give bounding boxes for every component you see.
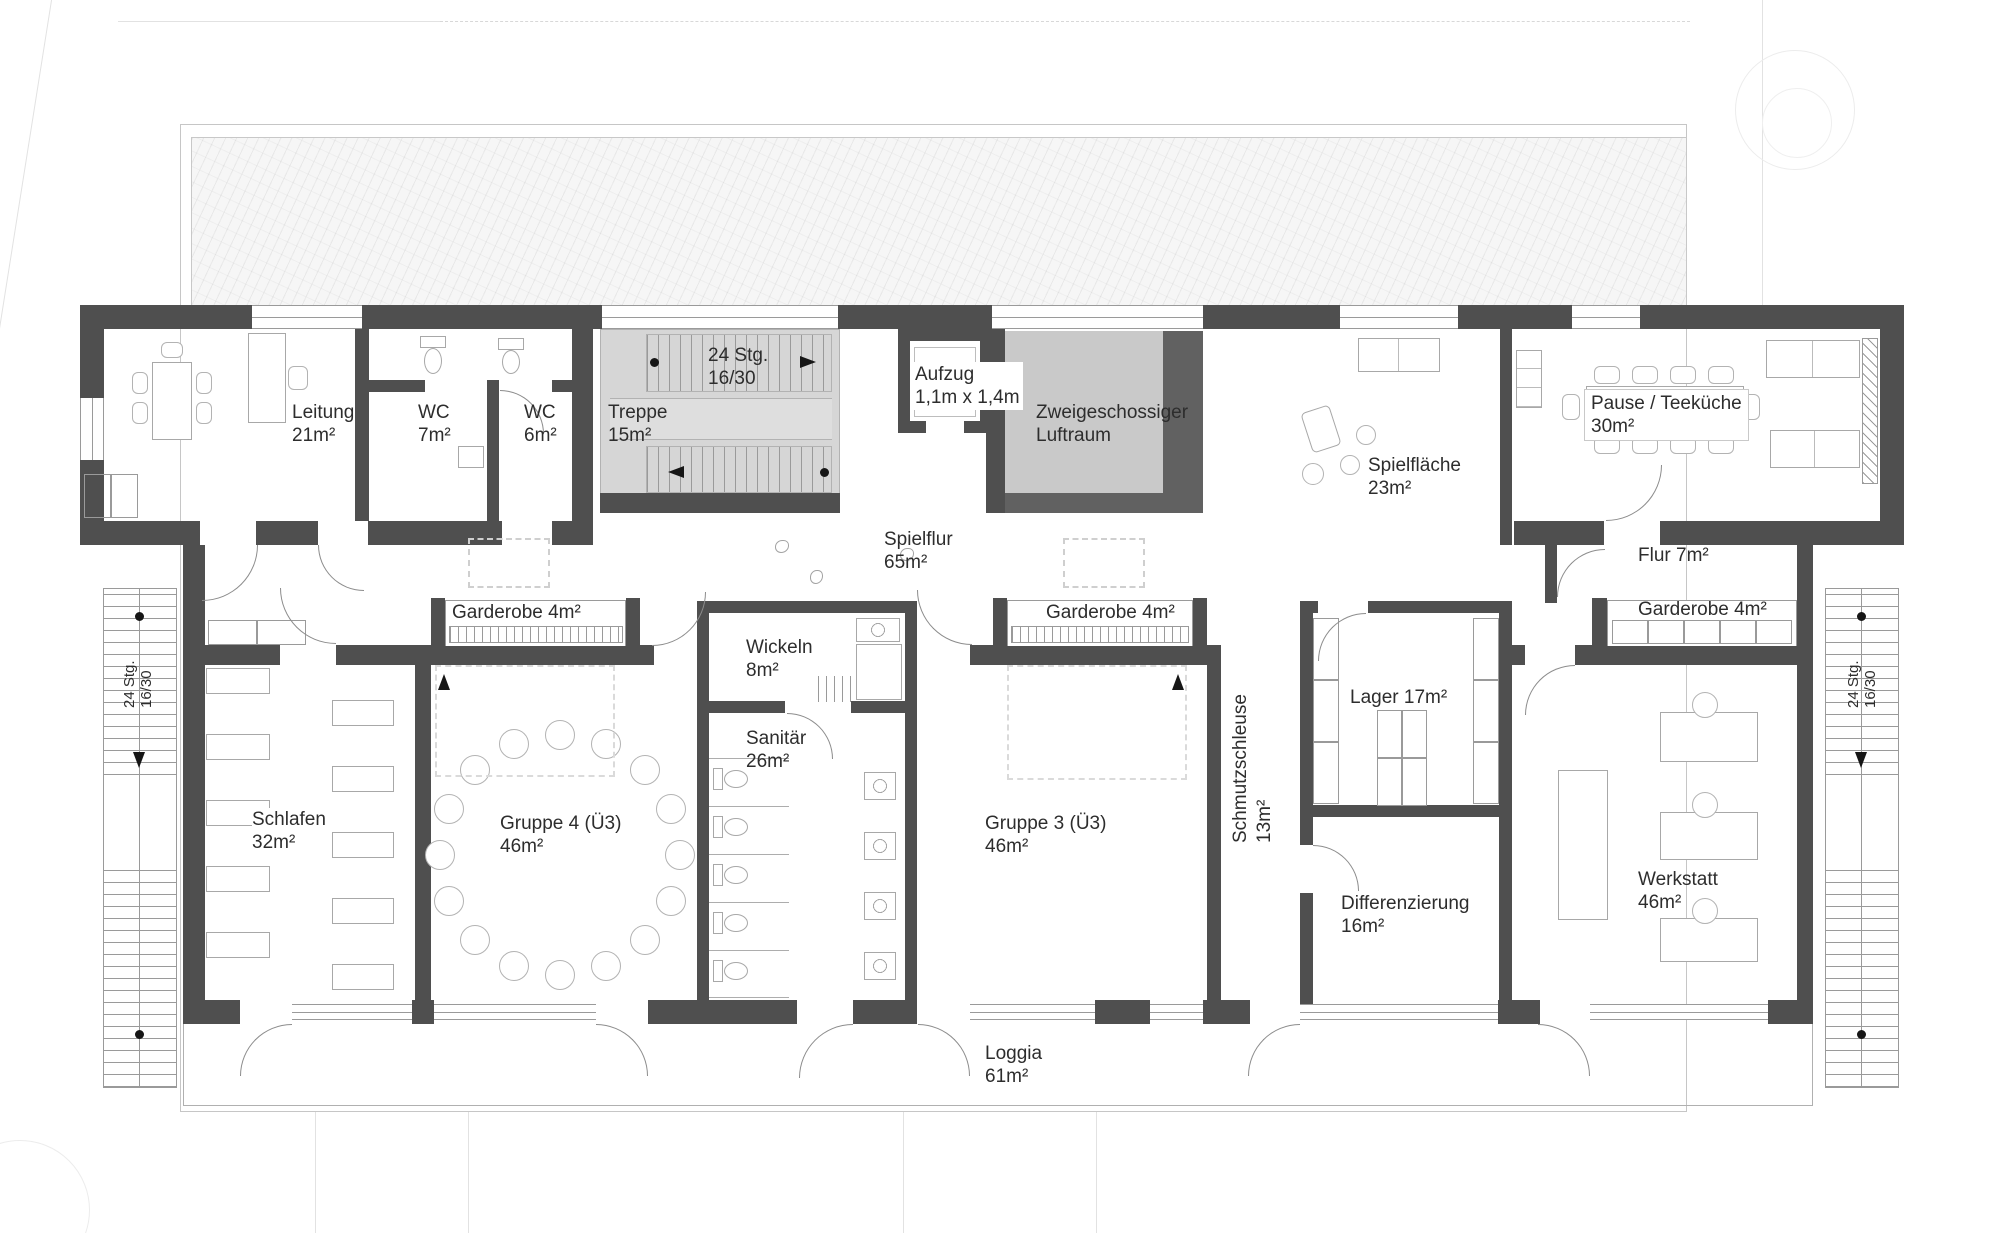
room-name2: Luftraum — [1036, 424, 1188, 447]
wall — [183, 1000, 240, 1024]
bed — [206, 734, 270, 760]
stairs-left-label2: 16/30 — [138, 670, 155, 708]
room-name: Lager 17m² — [1350, 686, 1447, 709]
toilet-bowl — [502, 350, 520, 374]
wall — [1203, 305, 1340, 329]
room-name: Sanitär — [746, 727, 806, 750]
room-label-aufzug: Aufzug 1,1m x 1,4m — [912, 362, 1023, 410]
context-dashed-line — [440, 21, 1690, 22]
sink — [458, 446, 484, 468]
room-name: Pause / Teeküche — [1591, 392, 1742, 415]
stair-treads — [1826, 868, 1898, 1087]
toilet-bowl — [724, 914, 748, 932]
room-name: Garderobe 4m² — [1638, 598, 1767, 621]
wall — [1207, 645, 1221, 1020]
stair-rise-run: 16/30 — [708, 367, 768, 390]
wall — [1768, 1000, 1813, 1024]
room-name: Spielfläche — [1368, 454, 1461, 477]
chair — [460, 925, 490, 955]
window — [252, 305, 362, 329]
tree-icon — [1762, 88, 1832, 158]
wall — [1300, 805, 1512, 817]
chair — [630, 925, 660, 955]
toilet — [713, 960, 723, 982]
stairs-right-label2: 16/30 — [1862, 670, 1879, 708]
chair — [1692, 692, 1718, 718]
room-area: 8m² — [746, 659, 813, 682]
tree-icon — [0, 1140, 90, 1233]
stair-direction-arrow — [800, 356, 816, 368]
wall — [415, 665, 431, 1020]
wall — [1797, 545, 1813, 1020]
wall — [1095, 1000, 1150, 1024]
room-label-pause: Pause / Teeküche 30m² — [1584, 389, 1749, 441]
shelf — [1402, 710, 1427, 758]
wall — [412, 1000, 434, 1024]
room-name: Gruppe 4 (Ü3) — [500, 812, 621, 835]
bed — [206, 932, 270, 958]
room-label-loggia: Loggia 61m² — [985, 1042, 1042, 1088]
wall — [552, 521, 593, 545]
room-label-schlafen: Schlafen 32m² — [252, 808, 326, 854]
stair-direction-arrow — [1855, 752, 1867, 768]
chair — [630, 755, 660, 785]
toilet — [713, 864, 723, 886]
chair — [499, 951, 529, 981]
room-name: Loggia — [985, 1042, 1042, 1065]
wall — [1660, 521, 1886, 545]
wall — [905, 601, 917, 1020]
toilet — [713, 912, 723, 934]
wall — [487, 380, 499, 521]
stairs-right-label: 24 Stg. — [1845, 660, 1862, 708]
desk — [1660, 918, 1758, 962]
room-label-schmutzschleuse-area: 13m² — [1253, 800, 1276, 843]
wall — [697, 601, 709, 1020]
room-area: 32m² — [252, 831, 326, 854]
wall — [1458, 305, 1572, 329]
room-name: Wickeln — [746, 636, 813, 659]
wall — [1512, 645, 1525, 665]
wall — [183, 545, 205, 1020]
wall — [1368, 601, 1512, 613]
chair — [1594, 366, 1620, 384]
pouf — [1356, 425, 1376, 445]
meeting-table — [152, 362, 192, 440]
room-label-wickeln: Wickeln 8m² — [746, 636, 813, 682]
room-area: 6m² — [524, 424, 557, 447]
wall — [1640, 305, 1904, 329]
locker — [208, 620, 257, 645]
wall — [600, 493, 840, 513]
room-label-treppe: Treppe 15m² — [608, 401, 668, 447]
room-label-spielflur: Spielflur 65m² — [884, 528, 953, 574]
stair-count-label: 24 Stg. 16/30 — [708, 344, 768, 390]
wall — [431, 598, 445, 665]
chair — [545, 960, 575, 990]
wall — [648, 1000, 695, 1024]
wall — [1300, 817, 1313, 845]
stair-center-line — [139, 589, 140, 1087]
elevator-wall — [898, 329, 910, 433]
wall — [851, 701, 905, 713]
wall — [183, 645, 280, 665]
radiator — [84, 474, 111, 518]
chair — [132, 372, 148, 394]
shelf — [1473, 618, 1499, 680]
room-name: Flur 7m² — [1638, 544, 1709, 567]
toilet-bowl — [724, 770, 748, 788]
stair-count: 24 Stg. — [121, 660, 138, 708]
room-name: WC — [524, 401, 557, 424]
projection-line — [315, 1112, 316, 1233]
wall — [80, 521, 200, 545]
cabinet — [1516, 350, 1542, 408]
wall — [1575, 645, 1797, 665]
wall — [1545, 545, 1557, 603]
up-arrow — [1172, 674, 1184, 690]
room-area: 46m² — [985, 835, 1106, 858]
shelf — [1313, 680, 1339, 742]
projection-line — [468, 1112, 469, 1233]
wall — [1500, 329, 1512, 545]
wall — [1300, 601, 1313, 817]
room-label-schmutzschleuse: Schmutzschleuse — [1229, 694, 1252, 843]
sofa — [1766, 340, 1860, 378]
window — [1150, 1004, 1203, 1020]
toilet-bowl — [724, 962, 748, 980]
room-name: Zweigeschossiger — [1036, 401, 1188, 424]
room-label-gruppe3: Gruppe 3 (Ü3) 46m² — [985, 812, 1106, 858]
window — [602, 305, 838, 329]
room-label-differenzierung: Differenzierung 16m² — [1341, 892, 1470, 938]
stair-treads — [104, 868, 176, 1087]
room-label-luftraum: Zweigeschossiger Luftraum — [1036, 401, 1188, 447]
chair — [132, 402, 148, 424]
window — [434, 1004, 596, 1020]
wall — [838, 305, 992, 329]
shelf — [1473, 742, 1499, 804]
chair — [665, 840, 695, 870]
radiator — [111, 474, 138, 518]
room-label-wc6: WC 6m² — [524, 401, 557, 447]
stair-start-dot — [650, 358, 659, 367]
room-name: Aufzug — [915, 363, 1020, 386]
projection-line — [903, 1112, 904, 1233]
wall — [697, 601, 917, 613]
room-label-garderobe-left: Garderobe 4m² — [452, 601, 581, 624]
changing-table — [856, 644, 902, 700]
wall — [1592, 598, 1607, 665]
room-label-garderobe-mid: Garderobe 4m² — [1046, 601, 1175, 624]
room-name: Schlafen — [252, 808, 326, 831]
room-area: 15m² — [608, 424, 668, 447]
room-label-lager: Lager 17m² — [1350, 686, 1447, 709]
garderobe-bench — [1011, 626, 1189, 643]
stair-start-dot — [135, 612, 144, 621]
room-name: Differenzierung — [1341, 892, 1470, 915]
floor-plan: Leitung 21m² WC 7m² WC 6m² Treppe 15m² 2… — [0, 0, 2000, 1233]
wall — [1203, 1000, 1250, 1024]
stair-start-dot — [135, 1030, 144, 1039]
room-name: Treppe — [608, 401, 668, 424]
site-boundary-line — [0, 0, 53, 338]
play-mat — [468, 538, 550, 588]
coat-rack — [1862, 338, 1878, 484]
wall — [355, 329, 369, 521]
bed — [332, 766, 394, 792]
stair-rise-run: 16/30 — [1862, 670, 1879, 708]
toilet-bowl — [724, 866, 748, 884]
play-area — [435, 665, 615, 777]
play-mat — [1063, 538, 1145, 588]
wall — [709, 701, 785, 713]
room-label-garderobe-right: Garderobe 4m² — [1638, 598, 1767, 621]
shelf — [1377, 758, 1402, 806]
shelf — [1473, 680, 1499, 742]
bed — [332, 898, 394, 924]
elevator-wall — [898, 329, 992, 341]
garderobe-bench — [1612, 620, 1648, 644]
chair — [425, 840, 455, 870]
room-label-gruppe4: Gruppe 4 (Ü3) 46m² — [500, 812, 621, 858]
stair-direction-arrow — [133, 752, 145, 768]
window — [970, 1004, 1095, 1020]
sink — [864, 832, 896, 860]
bed — [332, 964, 394, 990]
chair — [656, 886, 686, 916]
wall — [993, 598, 1007, 665]
stair-count: 24 Stg. — [708, 344, 768, 367]
window — [1300, 1004, 1498, 1020]
window — [80, 398, 104, 460]
shelf — [1402, 758, 1427, 806]
bed — [332, 832, 394, 858]
wall — [626, 598, 640, 645]
room-name: Werkstatt — [1638, 868, 1718, 891]
stair-count: 24 Stg. — [1845, 660, 1862, 708]
work-table — [1558, 770, 1608, 920]
room-label-leitung: Leitung 21m² — [292, 401, 354, 447]
shelf — [1313, 742, 1339, 804]
wall — [1498, 1000, 1540, 1024]
chair — [288, 366, 308, 390]
room-name: WC — [418, 401, 451, 424]
room-area: 61m² — [985, 1065, 1042, 1088]
chair — [161, 342, 183, 358]
sink — [864, 772, 896, 800]
room-name: Gruppe 3 (Ü3) — [985, 812, 1106, 835]
room-area: 30m² — [1591, 415, 1742, 438]
stair-start-dot — [1857, 1030, 1866, 1039]
elevator-wall — [898, 421, 926, 433]
room-name: Garderobe 4m² — [452, 601, 581, 624]
step-stairs — [818, 676, 854, 702]
chair — [1562, 394, 1580, 420]
stair-direction-arrow — [668, 466, 684, 478]
chair — [434, 794, 464, 824]
toilet-bowl — [424, 348, 442, 374]
wall — [572, 329, 593, 521]
window — [1572, 305, 1640, 329]
sink — [864, 892, 896, 920]
room-label-sanitaer: Sanitär 26m² — [746, 727, 806, 773]
chair — [196, 372, 212, 394]
wall — [1300, 893, 1313, 1020]
wall — [80, 305, 252, 329]
wall — [853, 1000, 917, 1024]
sink — [856, 618, 900, 642]
room-area: 23m² — [1368, 477, 1461, 500]
wall — [369, 380, 425, 392]
window — [292, 1004, 412, 1020]
wall — [256, 521, 318, 545]
chair — [1708, 366, 1734, 384]
toilet — [498, 338, 524, 350]
stair-start-dot — [1857, 612, 1866, 621]
pouf — [1302, 463, 1324, 485]
room-area: 46m² — [1638, 891, 1718, 914]
roof-hatch-area — [191, 137, 1687, 307]
wall — [1193, 598, 1207, 665]
stair-start-dot — [820, 468, 829, 477]
wall — [1514, 521, 1604, 545]
up-arrow — [438, 674, 450, 690]
projection-line — [1096, 1112, 1097, 1233]
bed — [206, 866, 270, 892]
wall — [362, 305, 602, 329]
stair-rise-run: 16/30 — [138, 670, 155, 708]
desk — [248, 333, 286, 423]
window — [992, 305, 1203, 329]
wall — [986, 329, 1005, 513]
stairs-left-label: 24 Stg. — [121, 660, 138, 708]
room-size: 1,1m x 1,4m — [915, 386, 1020, 409]
chair — [196, 402, 212, 424]
shelf — [1377, 710, 1402, 758]
sofa — [1358, 338, 1440, 372]
room-area: 46m² — [500, 835, 621, 858]
bed — [332, 700, 394, 726]
chair — [591, 951, 621, 981]
room-area: 13m² — [1254, 800, 1275, 843]
wall — [431, 645, 654, 665]
room-label-werkstatt: Werkstatt 46m² — [1638, 868, 1718, 914]
garderobe-bench — [1684, 620, 1720, 644]
room-name: Spielflur — [884, 528, 953, 551]
sink — [864, 952, 896, 980]
wall — [695, 1000, 797, 1024]
room-area: 26m² — [746, 750, 806, 773]
garderobe-bench — [1648, 620, 1684, 644]
void-border — [1005, 493, 1203, 513]
play-area — [1007, 665, 1187, 780]
chair — [656, 794, 686, 824]
bed — [206, 668, 270, 694]
room-name: Schmutzschleuse — [1230, 694, 1251, 843]
room-label-wc7: WC 7m² — [418, 401, 451, 447]
toilet-bowl — [724, 818, 748, 836]
room-name: Leitung — [292, 401, 354, 424]
chair — [1632, 366, 1658, 384]
window — [1340, 305, 1458, 329]
room-label-spielflaeche: Spielfläche 23m² — [1368, 454, 1461, 500]
desk — [1660, 712, 1758, 762]
room-label-flur: Flur 7m² — [1638, 544, 1709, 567]
garderobe-bench — [1756, 620, 1792, 644]
room-area: 21m² — [292, 424, 354, 447]
pouf — [1340, 455, 1360, 475]
neighbor-outline — [118, 21, 440, 22]
sofa — [1770, 430, 1860, 468]
room-area: 16m² — [1341, 915, 1470, 938]
room-area: 7m² — [418, 424, 451, 447]
garderobe-bench — [1720, 620, 1756, 644]
chair — [434, 886, 464, 916]
room-area: 65m² — [884, 551, 953, 574]
room-name: Garderobe 4m² — [1046, 601, 1175, 624]
chair — [1692, 792, 1718, 818]
window — [1590, 1004, 1768, 1020]
chair — [1670, 366, 1696, 384]
toilet — [713, 816, 723, 838]
wall — [1880, 305, 1904, 545]
toilet — [420, 336, 446, 348]
garderobe-bench — [449, 626, 623, 643]
toilet — [713, 768, 723, 790]
desk — [1660, 812, 1758, 860]
wall — [336, 645, 431, 665]
